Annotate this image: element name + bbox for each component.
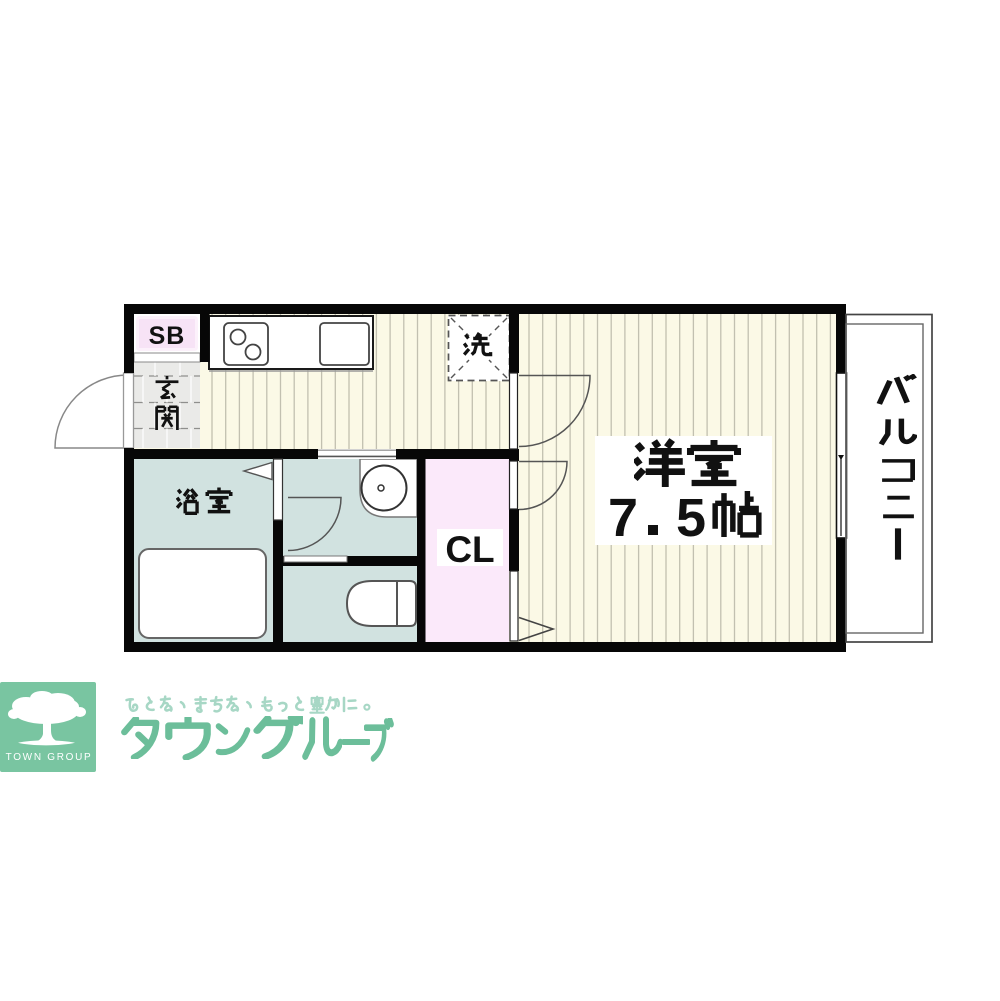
svg-text:7: 7 xyxy=(608,488,638,548)
svg-text:TOWN GROUP: TOWN GROUP xyxy=(6,752,93,763)
svg-text:SB: SB xyxy=(149,322,186,350)
svg-text:CL: CL xyxy=(445,529,494,570)
svg-text:5: 5 xyxy=(676,488,706,548)
